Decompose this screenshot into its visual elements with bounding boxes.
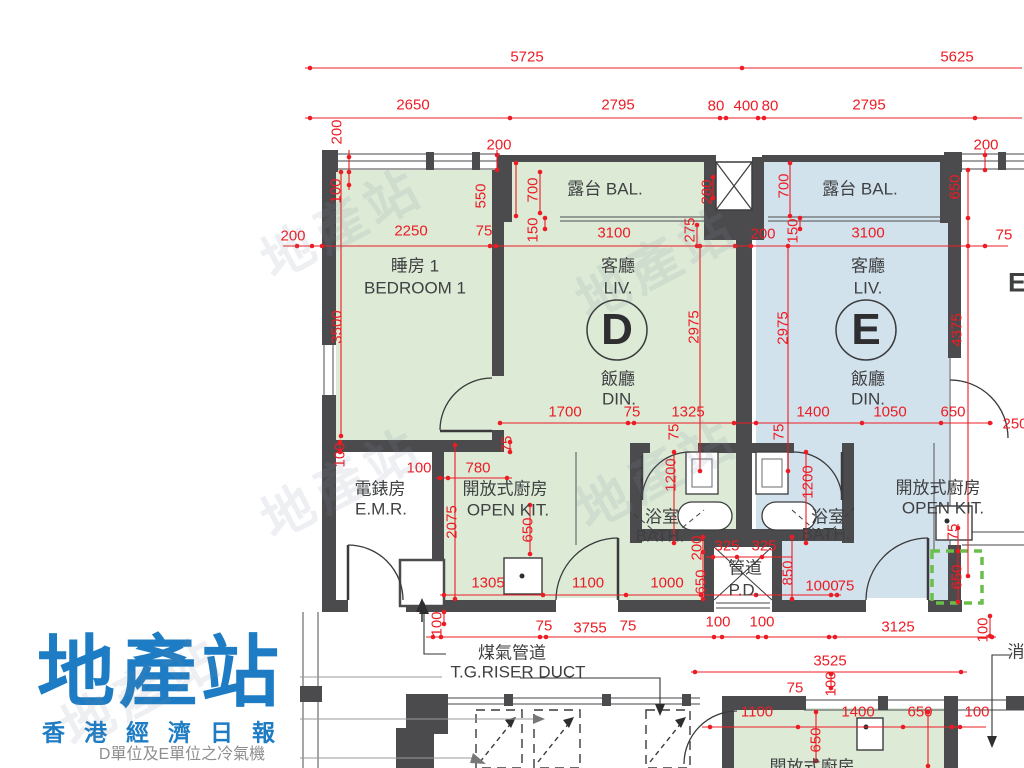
floorplan-drawing: [0, 0, 1024, 768]
floorplan-page: 地產站 香港經濟日報 D單位及E單位之冷氣機 57255625265027958…: [0, 0, 1024, 768]
